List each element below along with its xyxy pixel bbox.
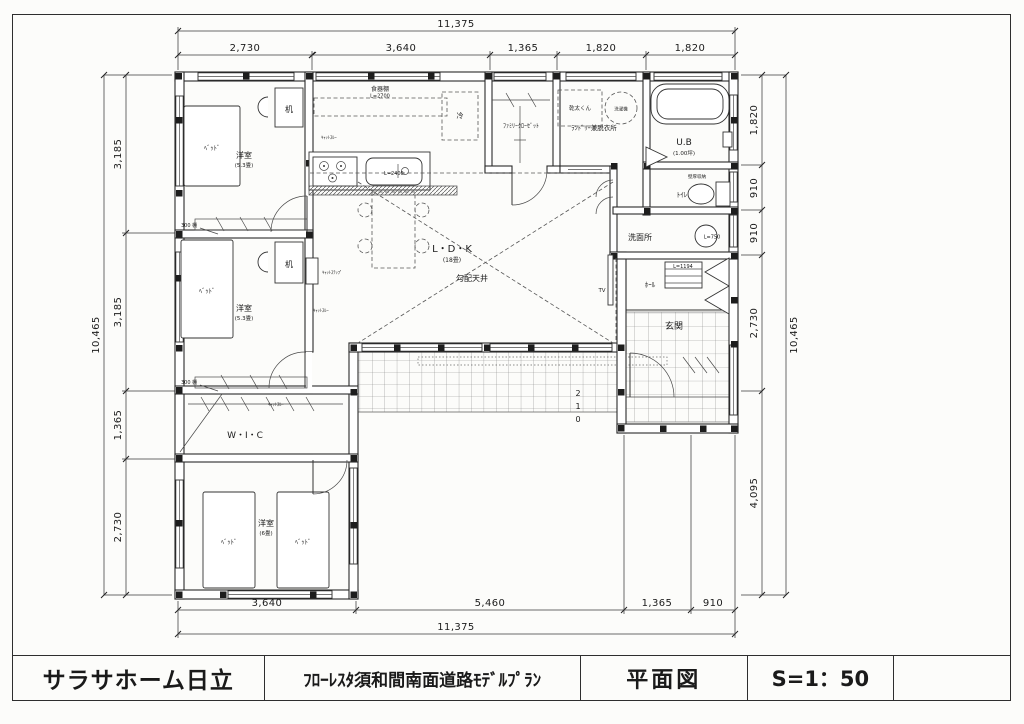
dim-bottom-total: 11,375 — [437, 622, 474, 633]
label-bedroom1: 洋室 — [236, 150, 252, 160]
dim-right-total: 10,465 — [789, 316, 800, 353]
dim-left-seg3: 1,365 — [113, 410, 124, 441]
label-bedroom1-size: (5.3畳) — [235, 162, 254, 169]
label-laundry: ﾗﾝﾄﾞﾘｰ兼脱衣所 — [571, 123, 617, 132]
dim-left: 3,185 3,185 1,365 2,730 10,465 — [91, 72, 175, 598]
desk-icon-2: 机 — [258, 242, 303, 283]
svg-text:洗濯機: 洗濯機 — [614, 106, 628, 113]
label-wall-storage: 壁厚収納 — [688, 173, 706, 180]
company-name: サラサホーム日立 — [13, 656, 265, 700]
svg-text:机: 机 — [285, 104, 293, 114]
svg-text:2: 2 — [575, 389, 580, 398]
label-shelf-2: 300 棚 — [181, 379, 197, 386]
svg-text:0: 0 — [575, 415, 580, 424]
label-toilet: ﾄｲﾚ — [677, 191, 688, 199]
dim-right-seg4: 2,730 — [749, 308, 760, 339]
tv-icon: TV — [597, 255, 613, 305]
drawing-scale: S=1：50 — [748, 656, 895, 700]
deck-steps: 2 1 0 — [575, 389, 580, 424]
label-bath-size: (1.00坪) — [673, 149, 695, 157]
dim-right-seg1: 1,820 — [749, 105, 760, 136]
washbasin-icon: L=750 — [695, 225, 720, 247]
closet-fold-doors — [705, 258, 729, 314]
label-hall: ﾎｰﾙ — [645, 281, 656, 289]
drawing-name: 平面図 — [581, 656, 748, 700]
svg-text:L=2700: L=2700 — [370, 94, 390, 100]
dim-right-seg5: 4,095 — [749, 478, 760, 509]
dim-top-seg2: 3,640 — [386, 43, 417, 54]
label-ldk: L・D・K — [432, 244, 472, 255]
dim-left-seg2: 3,185 — [113, 297, 124, 328]
dim-top-seg1: 2,730 — [230, 43, 261, 54]
cat-step-box — [306, 258, 318, 284]
dim-right-seg3: 910 — [749, 223, 760, 243]
dim-top-total: 11,375 — [437, 19, 474, 30]
label-family-closet: ﾌｧﾐﾘｰｸﾛｰｾﾞｯﾄ — [503, 123, 539, 130]
dim-top-seg3: 1,365 — [508, 43, 539, 54]
label-bath: U.B — [676, 138, 692, 148]
svg-text:食器棚: 食器棚 — [371, 85, 389, 93]
bed-icon-4: ﾍﾞｯﾄﾞ — [277, 492, 329, 588]
desk-icon-1: 机 — [258, 88, 303, 127]
label-ceiling: 勾配天井 — [456, 273, 488, 283]
dryer-icon: 乾太くん — [558, 90, 602, 126]
svg-text:1: 1 — [575, 402, 580, 411]
kitchen-counter: L=2400 — [309, 152, 457, 195]
dim-left-seg1: 3,185 — [113, 139, 124, 170]
label-genkan: 玄関 — [665, 320, 683, 332]
dim-bottom-seg4: 910 — [703, 598, 723, 609]
svg-text:ﾍﾞｯﾄﾞ: ﾍﾞｯﾄﾞ — [295, 538, 311, 546]
dim-top-seg5: 1,820 — [675, 43, 706, 54]
dining-table-icon — [358, 192, 429, 268]
label-wic: W・I・C — [227, 431, 263, 441]
bed-icon-3: ﾍﾞｯﾄﾞ — [203, 492, 255, 588]
floor-plan: 2 1 0 — [0, 0, 1024, 655]
dim-bottom-seg1: 3,640 — [252, 598, 283, 609]
dim-bottom-seg2: 5,460 — [475, 598, 506, 609]
dim-bottom-seg3: 1,365 — [642, 598, 673, 609]
dim-left-total: 10,465 — [91, 316, 102, 353]
closet-shelf-1 — [195, 217, 307, 231]
svg-text:乾太くん: 乾太くん — [569, 104, 592, 112]
kitchen-length-label: L=2400 — [384, 171, 404, 177]
label-ldk-size: (18畳) — [443, 257, 461, 264]
svg-text:ﾍﾞｯﾄﾞ: ﾍﾞｯﾄﾞ — [204, 144, 220, 152]
drawing-sheet: 2 1 0 — [0, 0, 1024, 724]
toilet-icon — [688, 182, 730, 206]
ceiling-lines — [310, 173, 616, 343]
svg-text:L=1194: L=1194 — [673, 264, 693, 270]
empty-cell — [894, 656, 1010, 700]
dim-right: 1,820 910 910 2,730 4,095 10,465 — [741, 72, 800, 598]
label-bedroom2: 洋室 — [236, 303, 252, 313]
dim-right-seg2: 910 — [749, 178, 760, 198]
bed-icon-2: ﾍﾞｯﾄﾞ — [181, 240, 233, 338]
stove-icon — [313, 157, 357, 186]
title-block: サラサホーム日立 ﾌﾛｰﾚｽﾀ須和間南面道路ﾓﾃﾞﾙﾌﾟﾗﾝ 平面図 S=1：5… — [12, 655, 1011, 701]
dim-top-seg4: 1,820 — [586, 43, 617, 54]
label-bedroom2-size: (5.3畳) — [235, 315, 254, 322]
svg-text:ﾍﾞｯﾄﾞ: ﾍﾞｯﾄﾞ — [221, 538, 237, 546]
counter-front — [309, 186, 457, 195]
label-cat-through-2: ｷｬｯﾄｽﾙｰ — [313, 308, 329, 314]
label-bedroom3-size: (6畳) — [259, 530, 272, 537]
svg-text:ﾍﾞｯﾄﾞ: ﾍﾞｯﾄﾞ — [199, 287, 215, 295]
dim-left-seg4: 2,730 — [113, 512, 124, 543]
label-cat-step: ｷｬｯﾄｽﾃｯﾌﾟ — [322, 269, 342, 276]
label-cat-through-1: ｷｬｯﾄｽﾙｰ — [321, 135, 337, 141]
svg-text:机: 机 — [285, 259, 293, 269]
svg-text:TV: TV — [597, 288, 605, 294]
shoe-cabinet-icon: L=1194 — [665, 262, 702, 288]
wic-rods — [180, 394, 343, 452]
label-washroom: 洗面所 — [628, 232, 652, 242]
cupboard-icon: 食器棚 L=2700 — [314, 85, 447, 116]
svg-text:冷: 冷 — [457, 111, 464, 120]
label-cat-through-3: ｷｬｯﾄｽﾙｰ — [268, 402, 284, 408]
label-bedroom3: 洋室 — [258, 518, 274, 528]
bed-icon-1: ﾍﾞｯﾄﾞ — [184, 106, 240, 186]
washer-icon: 洗濯機 — [605, 92, 637, 124]
project-name: ﾌﾛｰﾚｽﾀ須和間南面道路ﾓﾃﾞﾙﾌﾟﾗﾝ — [265, 656, 581, 700]
label-shelf-1: 300 棚 — [181, 222, 197, 229]
svg-text:L=750: L=750 — [704, 235, 721, 241]
dim-top: 11,375 2,730 3,640 1,365 1,820 1,820 — [175, 19, 738, 70]
